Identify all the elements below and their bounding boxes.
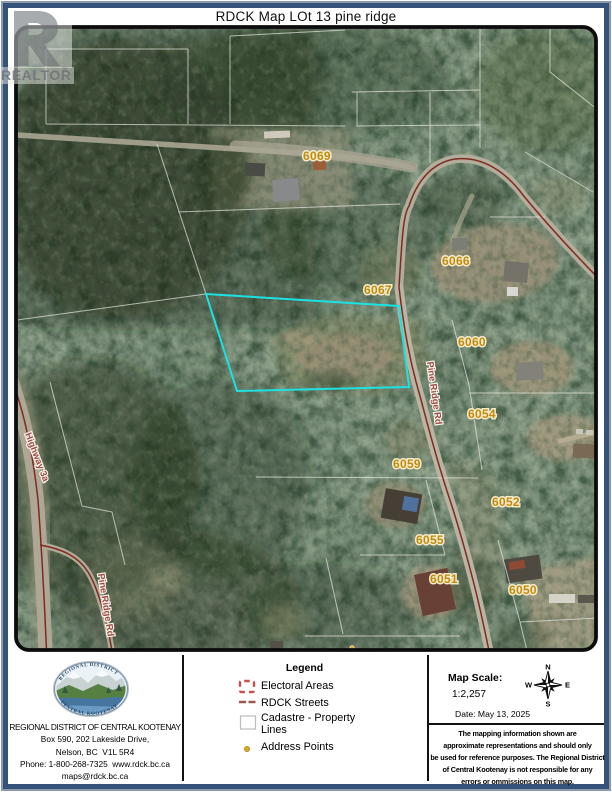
svg-text:®: ® — [62, 66, 68, 74]
svg-text:E: E — [565, 681, 570, 690]
svg-text:6055: 6055 — [416, 533, 444, 547]
svg-text:W: W — [525, 681, 533, 690]
svg-text:REALTOR: REALTOR — [1, 67, 72, 83]
svg-text:6051: 6051 — [430, 572, 458, 586]
svg-text:6052: 6052 — [492, 495, 520, 509]
svg-text:6059: 6059 — [393, 457, 421, 471]
svg-text:6050: 6050 — [509, 583, 537, 597]
svg-text:6067: 6067 — [364, 283, 392, 297]
svg-text:S: S — [545, 700, 550, 709]
svg-text:6069: 6069 — [303, 149, 331, 163]
svg-text:6066: 6066 — [442, 254, 470, 268]
svg-text:6060: 6060 — [458, 335, 486, 349]
svg-text:N: N — [545, 663, 550, 672]
svg-text:6054: 6054 — [468, 407, 496, 421]
